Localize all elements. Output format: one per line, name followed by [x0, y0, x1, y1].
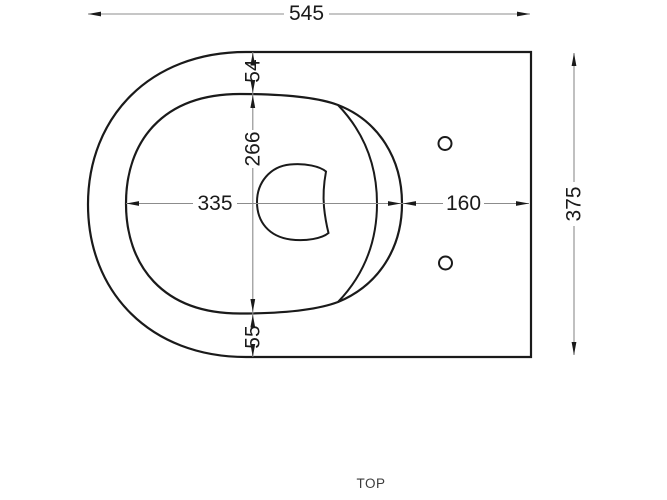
toilet-top-view-drawing: 545 375 54 266 335 160 55 TOP — [0, 0, 667, 500]
view-label: TOP — [356, 476, 385, 491]
dim-bowl-opening-depth-label: 266 — [241, 131, 264, 166]
dim-rear-section-length-label: 160 — [446, 192, 481, 215]
dim-overall-depth-label: 375 — [563, 186, 586, 221]
drain-sump-outline — [257, 164, 329, 240]
dim-overall-width-label: 545 — [289, 2, 324, 25]
technical-drawing-canvas: 545 375 54 266 335 160 55 TOP — [0, 0, 667, 500]
dimension-lines — [88, 14, 574, 357]
dim-bowl-offset-bottom-label: 55 — [241, 325, 264, 348]
dimension-arrowheads — [88, 12, 576, 357]
mounting-hole-bottom — [439, 257, 452, 270]
dim-bowl-opening-length-label: 335 — [197, 192, 232, 215]
dim-bowl-offset-top-label: 54 — [241, 59, 264, 83]
mounting-hole-top — [439, 137, 452, 150]
